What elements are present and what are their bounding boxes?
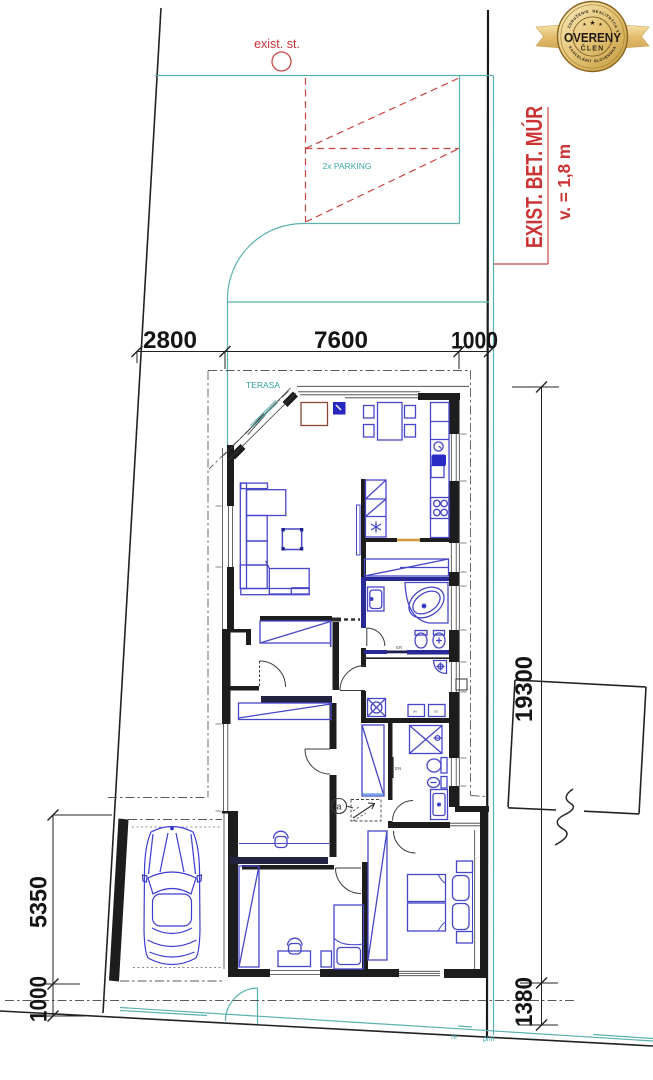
svg-text:2800: 2800 <box>143 327 197 354</box>
svg-text:a: a <box>336 802 341 812</box>
svg-text:TERASA: TERASA <box>246 380 280 390</box>
svg-text:ČLEN: ČLEN <box>581 44 605 53</box>
svg-text:OVERENÝ: OVERENÝ <box>564 30 621 45</box>
svg-text:av: av <box>413 709 417 714</box>
svg-text:plm: plm <box>483 1036 494 1043</box>
svg-text:ER: ER <box>396 645 403 650</box>
svg-text:v. = 1,8 m: v. = 1,8 m <box>554 144 574 220</box>
svg-text:5350: 5350 <box>26 876 53 928</box>
svg-text:7600: 7600 <box>314 327 368 354</box>
svg-text:1380: 1380 <box>511 977 538 1027</box>
svg-text:su: su <box>434 709 438 714</box>
svg-text:19300: 19300 <box>511 656 538 722</box>
svg-text:1000: 1000 <box>26 976 53 1022</box>
svg-text:re: re <box>451 1034 457 1041</box>
svg-text:2x PARKING: 2x PARKING <box>323 161 372 171</box>
svg-text:EN: EN <box>395 766 401 771</box>
svg-text:1000: 1000 <box>451 328 498 355</box>
svg-text:exist. st.: exist. st. <box>254 37 300 51</box>
svg-text:EXIST. BET. MÚR: EXIST. BET. MÚR <box>520 106 547 248</box>
